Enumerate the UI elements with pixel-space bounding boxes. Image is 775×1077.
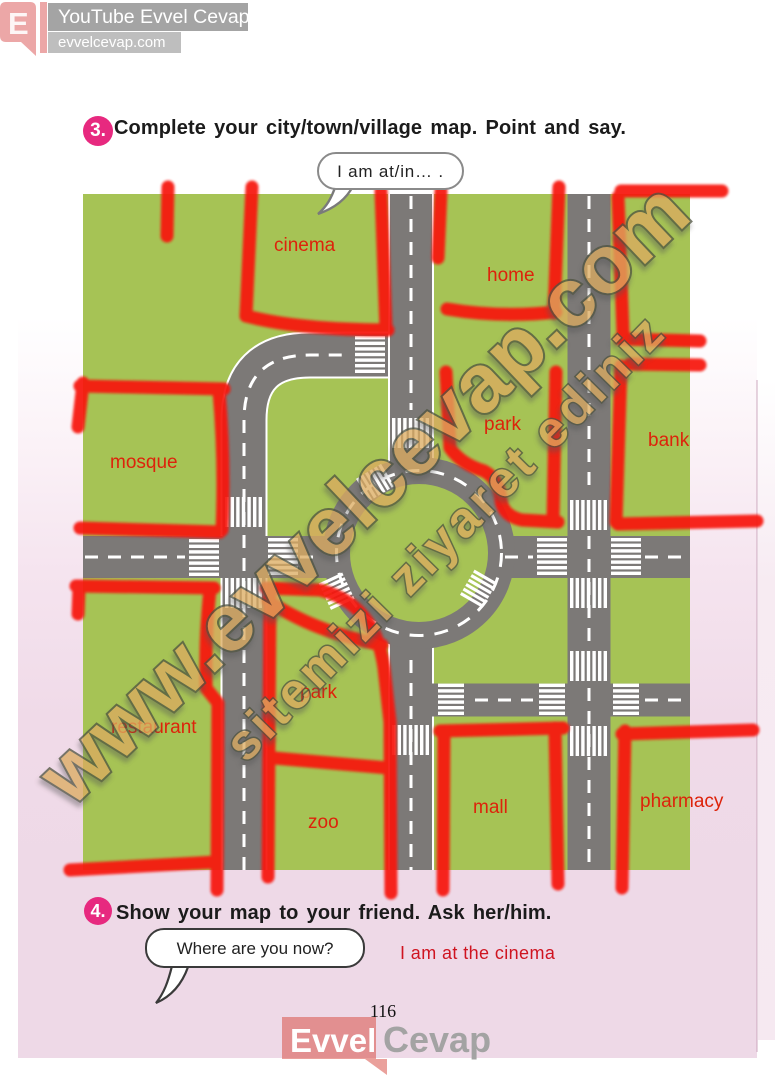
svg-text:cinema: cinema	[274, 235, 336, 256]
svg-text:zoo: zoo	[308, 812, 339, 833]
svg-text:mall: mall	[473, 797, 508, 818]
svg-text:pharmacy: pharmacy	[640, 791, 724, 812]
svg-text:E: E	[8, 6, 29, 41]
svg-text:bank: bank	[648, 430, 690, 451]
svg-text:mosque: mosque	[110, 452, 178, 473]
